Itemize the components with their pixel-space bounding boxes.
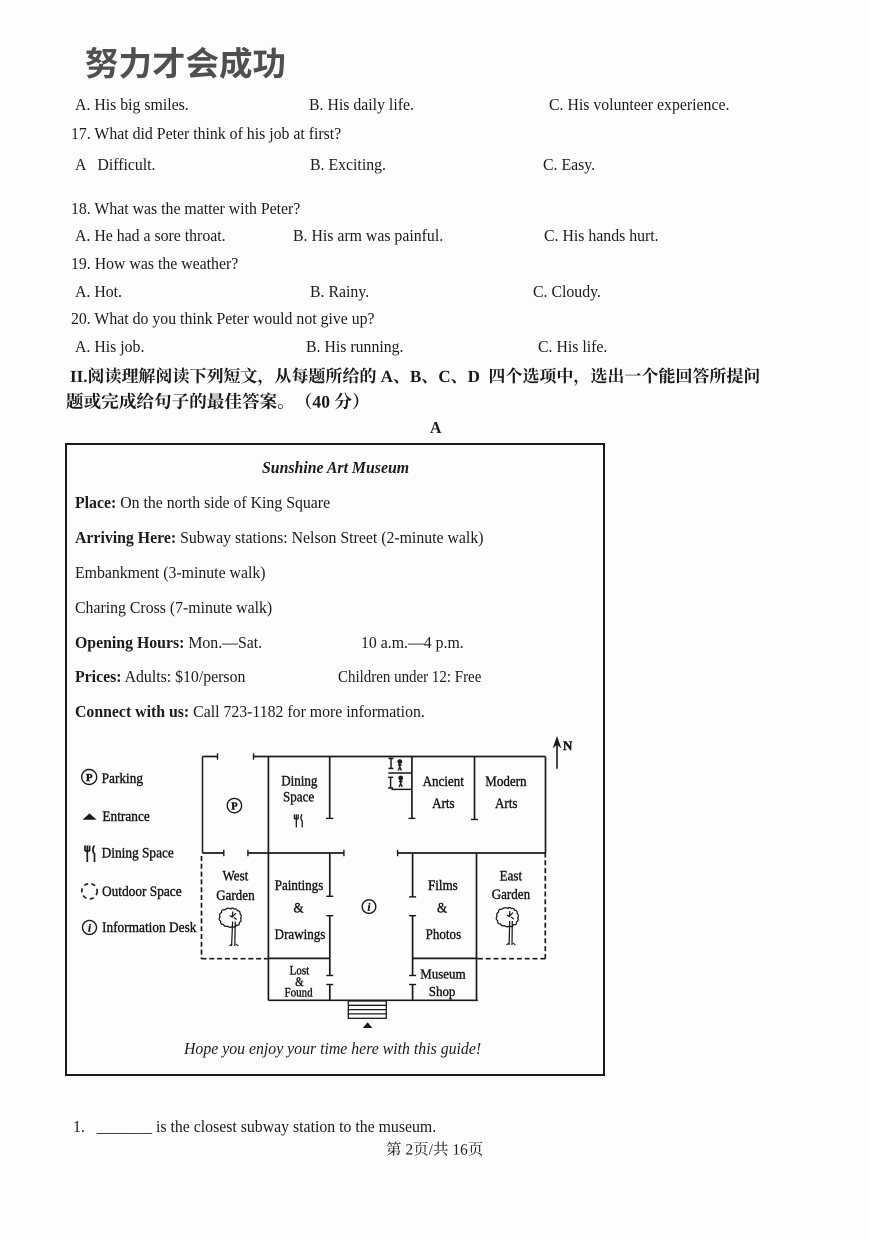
svg-text:P: P [231, 802, 238, 813]
svg-text:Space: Space [283, 789, 314, 805]
svg-text:Ancient: Ancient [423, 773, 464, 789]
svg-text:East: East [500, 868, 523, 884]
svg-text:Museum: Museum [420, 966, 466, 981]
svg-text:Paintings: Paintings [275, 877, 324, 893]
svg-text:Modern: Modern [485, 773, 526, 789]
svg-text:Dining: Dining [281, 773, 317, 789]
svg-text:West: West [223, 868, 249, 884]
svg-text:Drawings: Drawings [275, 926, 326, 942]
svg-text:Dining Space: Dining Space [102, 845, 174, 862]
svg-text:Films: Films [428, 877, 458, 893]
svg-text:&: & [437, 900, 447, 916]
svg-text:Arts: Arts [495, 796, 517, 812]
svg-text:Outdoor Space: Outdoor Space [102, 883, 182, 900]
svg-text:Information Desk: Information Desk [102, 920, 197, 937]
svg-text:N: N [563, 738, 573, 753]
svg-text:Arts: Arts [432, 796, 454, 812]
svg-text:P: P [86, 772, 93, 784]
svg-text:i: i [88, 923, 92, 935]
svg-text:Parking: Parking [102, 770, 144, 787]
svg-text:&: & [294, 900, 304, 916]
svg-text:Shop: Shop [429, 984, 456, 999]
svg-text:Garden: Garden [492, 886, 530, 902]
svg-text:Garden: Garden [216, 887, 254, 903]
svg-text:Entrance: Entrance [102, 808, 149, 825]
svg-text:Photos: Photos [426, 926, 462, 942]
svg-text:Found: Found [285, 986, 313, 1000]
svg-text:i: i [368, 903, 371, 914]
